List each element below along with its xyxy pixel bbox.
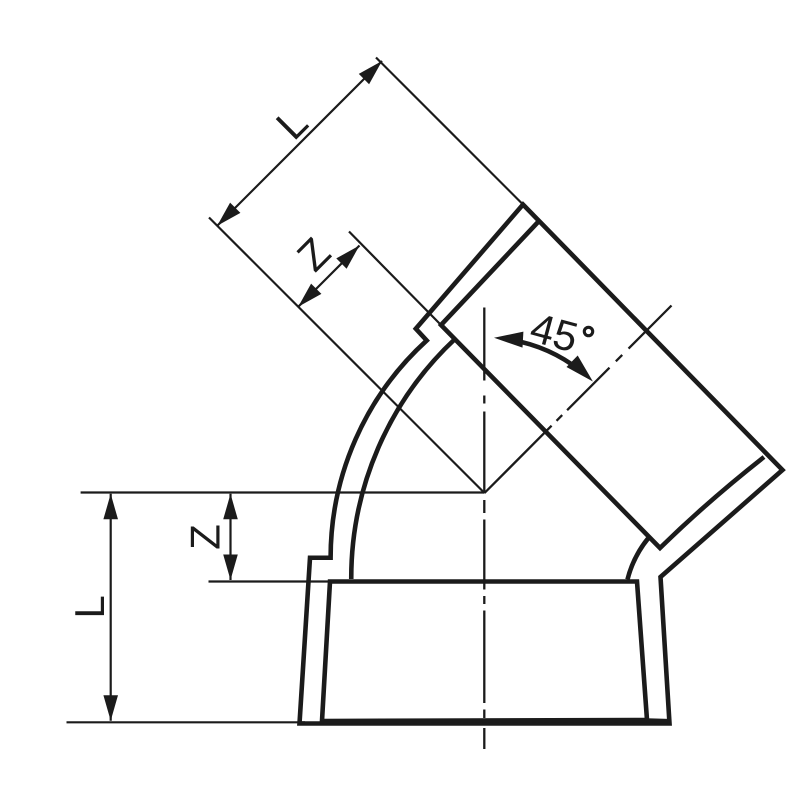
svg-text:L: L: [66, 595, 113, 618]
svg-text:L: L: [267, 99, 317, 149]
svg-text:Z: Z: [182, 524, 229, 550]
svg-text:45: 45: [526, 304, 583, 361]
